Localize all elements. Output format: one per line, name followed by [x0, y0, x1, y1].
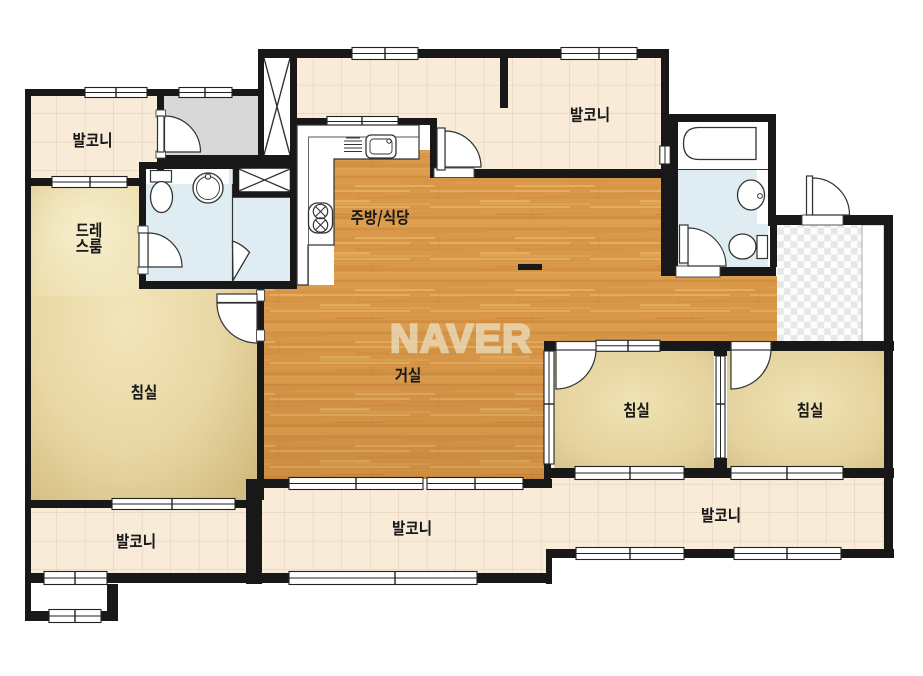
svg-text:NAVER: NAVER	[390, 317, 532, 361]
